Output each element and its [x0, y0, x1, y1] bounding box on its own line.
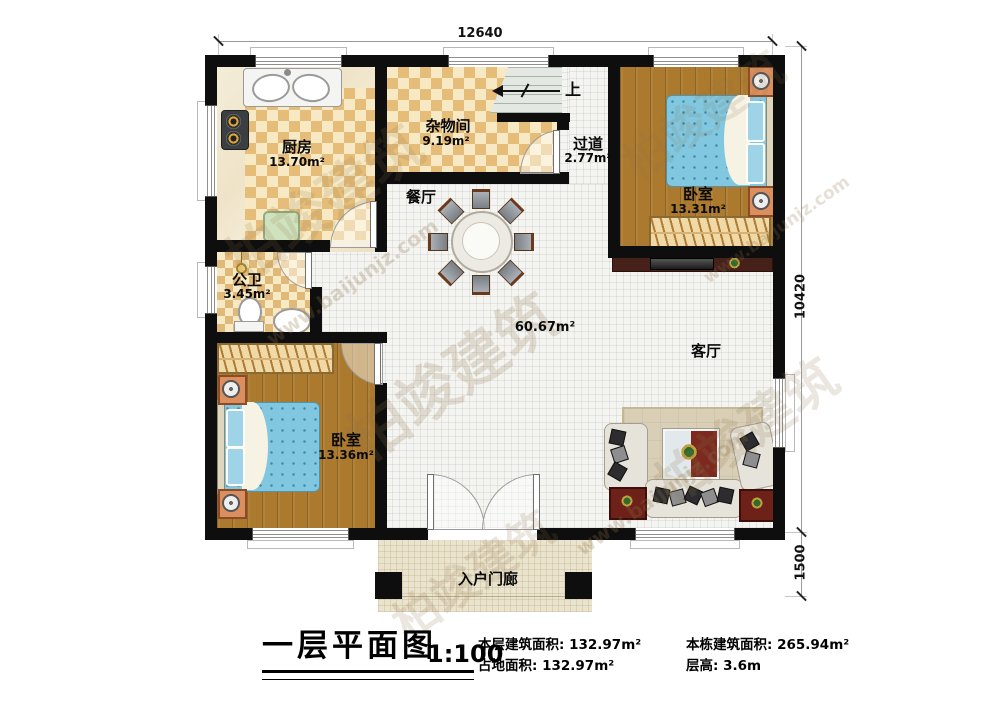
wall-storage-hall-upper [557, 113, 569, 130]
title-underline [262, 670, 474, 680]
open-area-label: 60.67m² [509, 321, 581, 334]
wall-bedleft-top-link [322, 332, 387, 343]
room-label-storage: 杂物间 [412, 119, 484, 134]
lamp-icon [752, 192, 770, 210]
window-sill [785, 374, 795, 452]
dining-chair [428, 233, 448, 251]
room-area-bathroom: 3.45m² [218, 288, 276, 300]
window-storage-top [448, 55, 549, 67]
bed-headboard [217, 400, 225, 494]
porch-step-line [378, 596, 592, 597]
wall-right [773, 55, 785, 540]
stat-value: 132.97m² [569, 637, 641, 653]
window-kitchen-left [205, 105, 217, 197]
dining-chair [472, 189, 490, 209]
room-label-kitchen: 厨房 [261, 140, 333, 155]
dim-line-top [218, 41, 772, 42]
entrance-door-leaf-right [533, 474, 540, 530]
dim-height: 10420 [795, 263, 808, 331]
stat-value: 265.94m² [777, 637, 849, 653]
dining-table-center [462, 222, 500, 260]
plant-icon [620, 494, 634, 508]
lamp-icon [752, 72, 770, 90]
stair-arrow-icon [492, 85, 503, 97]
room-label-living: 客厅 [683, 344, 729, 359]
plant-icon [750, 496, 764, 510]
toilet-tank [234, 321, 264, 332]
plan-title: 一层平面图 [262, 631, 437, 662]
sofa-pillow [653, 487, 671, 505]
window-bathroom-left [205, 266, 217, 314]
window-living-right [773, 378, 785, 448]
wardrobe-rod [219, 358, 332, 360]
window-bedroom-top [653, 55, 739, 67]
stat-label: 本层建筑面积: [478, 637, 564, 653]
wardrobe [217, 343, 334, 374]
lamp-icon [222, 494, 240, 512]
stat-floor-area: 本层建筑面积: 132.97m² [478, 639, 641, 653]
wall-bedroom-top-bottom [608, 246, 773, 258]
window-sill [247, 540, 354, 549]
dining-chair [472, 275, 490, 295]
pillow [226, 447, 245, 486]
tv-icon [650, 258, 714, 270]
room-label-bedroom-left: 卧室 [310, 433, 382, 448]
room-area-storage: 9.19m² [408, 135, 484, 147]
plant-icon [727, 257, 742, 269]
room-area-bedroom-top: 13.31m² [660, 203, 736, 215]
stove-burner-icon [226, 131, 241, 146]
wardrobe-rod [651, 232, 769, 234]
bathroom-sink-icon [273, 308, 311, 335]
window-sill [630, 540, 740, 549]
wall-bathroom-bottom [205, 332, 322, 343]
room-label-porch: 入户门廊 [448, 572, 528, 587]
kitchen-door-leaf [370, 201, 377, 248]
fridge [263, 211, 300, 242]
pillow [746, 143, 765, 184]
room-label-bedroom-top: 卧室 [662, 187, 734, 202]
porch-column-left [375, 572, 402, 599]
kitchen-faucet-icon [284, 69, 291, 76]
stat-value: 132.97m² [542, 658, 614, 674]
room-area-kitchen: 13.70m² [259, 156, 335, 168]
room-area-bedroom-left: 13.36m² [308, 449, 384, 461]
lamp-icon [222, 380, 240, 398]
room-label-hallway: 过道 [564, 137, 612, 152]
stat-land-area: 占地面积: 132.97m² [478, 660, 614, 674]
extension-line [218, 34, 219, 55]
sofa-pillow [717, 487, 735, 505]
dim-porch: 1500 [795, 529, 808, 597]
window-bedroom-bottom [252, 528, 349, 540]
plant-icon [679, 442, 699, 462]
dining-chair [514, 233, 534, 251]
wardrobe [649, 216, 771, 250]
stat-total-area: 本栋建筑面积: 265.94m² [686, 639, 849, 653]
stat-floor-height: 层高: 3.6m [686, 660, 761, 674]
extension-line [772, 34, 773, 55]
bedroom-left-door-leaf [374, 343, 381, 385]
bathroom-door-leaf [305, 252, 312, 289]
pillow [746, 101, 765, 142]
stat-value: 3.6m [723, 658, 761, 674]
window-living-bottom [635, 528, 735, 540]
porch-column-right [565, 572, 592, 599]
wall-kitchen-bottom [205, 240, 330, 252]
pillow [226, 409, 245, 448]
stat-label: 本栋建筑面积: [686, 637, 772, 653]
room-area-hallway: 2.77m² [560, 152, 616, 164]
room-label-dining: 餐厅 [398, 190, 444, 205]
stairs-up-label: 上 [564, 82, 582, 98]
dim-width: 12640 [448, 27, 512, 40]
stat-label: 占地面积: [478, 658, 537, 674]
stair-arrow-line [502, 90, 560, 92]
stove-burner-icon [226, 114, 241, 129]
entrance-door-leaf-left [427, 474, 434, 530]
window-kitchen-top [255, 55, 342, 67]
storage-door-leaf [553, 130, 560, 174]
wall-bathroom-right [310, 287, 322, 332]
floor-plan-canvas: 柏竣建筑 柏竣建筑 柏竣建筑 柏竣建筑 柏竣建筑 www.baijunjz.co… [0, 0, 1000, 706]
room-label-bathroom: 公卫 [222, 273, 272, 288]
sofa-pillow [609, 429, 627, 447]
stat-label: 层高: [686, 658, 718, 674]
